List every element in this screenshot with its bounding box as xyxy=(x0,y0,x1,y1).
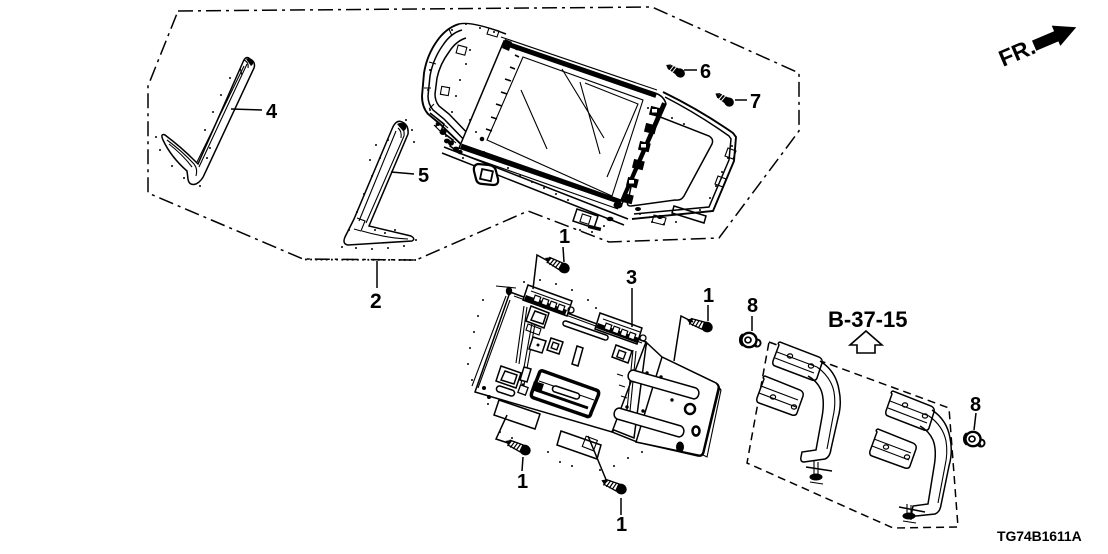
svg-text:1: 1 xyxy=(559,226,570,248)
svg-text:7: 7 xyxy=(750,91,761,113)
svg-text:2: 2 xyxy=(370,290,382,313)
svg-text:8: 8 xyxy=(970,394,981,416)
svg-text:4: 4 xyxy=(266,101,278,123)
svg-text:1: 1 xyxy=(703,285,714,307)
svg-text:8: 8 xyxy=(747,295,758,317)
svg-text:1: 1 xyxy=(616,514,627,536)
svg-text:5: 5 xyxy=(418,165,429,187)
svg-text:3: 3 xyxy=(626,267,637,289)
svg-text:B-37-15: B-37-15 xyxy=(828,307,907,332)
svg-text:1: 1 xyxy=(517,471,528,493)
svg-text:6: 6 xyxy=(700,61,711,83)
svg-text:TG74B1611A: TG74B1611A xyxy=(997,528,1082,544)
